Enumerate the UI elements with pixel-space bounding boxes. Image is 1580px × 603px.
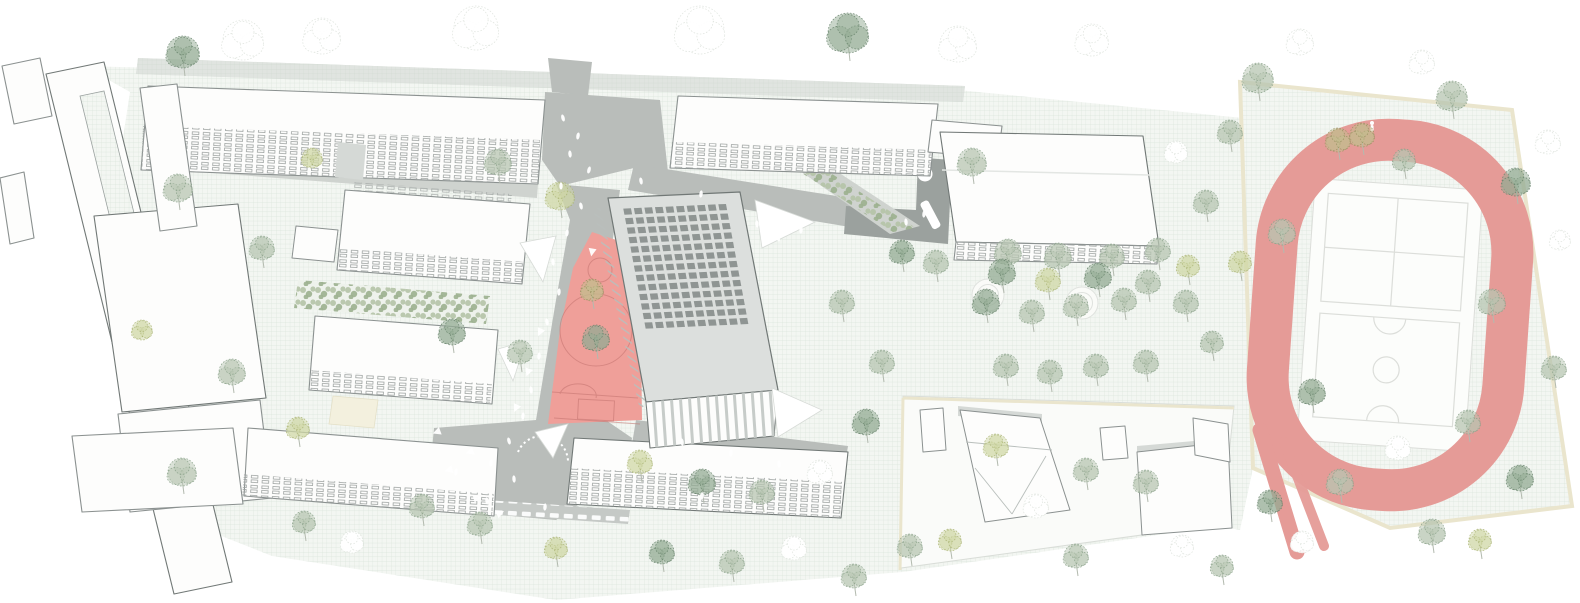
- roof-solar-panel: [637, 227, 646, 233]
- roof-solar-panel: [710, 271, 719, 277]
- tree: [939, 26, 977, 62]
- roof-solar-panel: [687, 205, 696, 211]
- tree: [1409, 50, 1434, 74]
- roof-solar-panel: [664, 254, 673, 260]
- roof-solar-panel: [667, 273, 676, 279]
- roof-solar-panel: [648, 284, 657, 290]
- roof-solar-panel: [667, 216, 676, 222]
- roof-solar-panel: [701, 224, 710, 230]
- roof-solar-panel: [731, 270, 740, 276]
- roof-solar-panel: [662, 245, 671, 251]
- roof-solar-panel: [637, 284, 646, 290]
- site-plan-drawing: [0, 0, 1580, 603]
- roof-solar-panel: [623, 208, 632, 214]
- roof-solar-panel: [729, 318, 738, 324]
- tree: [841, 564, 866, 596]
- roof-solar-panel: [660, 235, 669, 241]
- roof-solar-panel: [722, 280, 731, 286]
- roof-solar-panel: [697, 262, 706, 268]
- roof-solar-panel: [685, 311, 694, 317]
- roof-solar-panel: [703, 291, 712, 297]
- roof-solar-panel: [699, 272, 708, 278]
- roof-solar-panel: [690, 282, 699, 288]
- campus-masterplan-figure: [0, 0, 1580, 603]
- house-small-2: [1100, 426, 1128, 460]
- roof-solar-panel: [734, 289, 743, 295]
- roof-solar-panel: [674, 311, 683, 317]
- tree: [131, 320, 152, 340]
- roof-solar-panel: [681, 234, 690, 240]
- tree: [1075, 24, 1109, 56]
- roof-solar-panel: [674, 254, 683, 260]
- roof-solar-panel: [650, 236, 659, 242]
- roof-solar-panel: [713, 233, 722, 239]
- roof-solar-panel: [651, 245, 660, 251]
- house-small-1: [920, 408, 946, 452]
- roof-solar-panel: [680, 282, 689, 288]
- track-infield: [1297, 178, 1483, 451]
- roof-solar-panel: [627, 227, 636, 233]
- roof-solar-panel: [655, 264, 664, 270]
- roof-solar-panel: [736, 299, 745, 305]
- tree: [222, 20, 264, 60]
- roof-solar-panel: [706, 252, 715, 258]
- block-a-stair-core: [335, 142, 366, 180]
- edge-block-nw-1: [2, 58, 52, 124]
- roof-solar-panel: [666, 321, 675, 327]
- roof-solar-panel: [676, 321, 685, 327]
- roof-solar-panel: [625, 218, 634, 224]
- roof-solar-panel: [629, 237, 638, 243]
- roof-solar-panel: [720, 271, 729, 277]
- roof-solar-panel: [683, 244, 692, 250]
- roof-solar-panel: [708, 319, 717, 325]
- tree: [1549, 230, 1570, 250]
- roof-solar-panel: [740, 318, 749, 324]
- roof-solar-panel: [703, 233, 712, 239]
- roof-solar-panel: [688, 272, 697, 278]
- roof-solar-panel: [655, 322, 664, 328]
- tree: [1468, 529, 1491, 559]
- roof-solar-panel: [708, 262, 717, 268]
- roof-solar-panel: [694, 301, 703, 307]
- roof-solar-panel: [688, 215, 697, 221]
- roof-solar-panel: [643, 255, 652, 261]
- roof-solar-panel: [701, 281, 710, 287]
- roof-solar-panel: [646, 274, 655, 280]
- tree: [1418, 519, 1445, 553]
- roof-solar-panel: [696, 310, 705, 316]
- roof-solar-panel: [725, 242, 734, 248]
- roof-solar-panel: [738, 308, 747, 314]
- edge-block-w-2: [0, 172, 34, 244]
- roof-solar-panel: [680, 225, 689, 231]
- tree: [303, 18, 341, 54]
- roof-solar-panel: [653, 255, 662, 261]
- roof-solar-panel: [713, 290, 722, 296]
- roof-solar-panel: [704, 300, 713, 306]
- roof-solar-panel: [662, 302, 671, 308]
- roof-solar-panel: [692, 291, 701, 297]
- roof-solar-panel: [660, 293, 669, 299]
- roof-solar-panel: [634, 208, 643, 214]
- tree: [674, 6, 724, 54]
- roof-solar-panel: [659, 283, 668, 289]
- house-east-wing: [1193, 418, 1230, 462]
- roof-solar-panel: [697, 205, 706, 211]
- roof-solar-panel: [659, 226, 668, 232]
- roof-solar-panel: [694, 243, 703, 249]
- roof-solar-panel: [657, 274, 666, 280]
- roof-solar-panel: [636, 217, 645, 223]
- tree: [1170, 535, 1193, 557]
- roof-solar-panel: [630, 246, 639, 252]
- tree: [1286, 29, 1313, 55]
- roof-solar-panel: [671, 292, 680, 298]
- roof-solar-panel: [673, 244, 682, 250]
- roof-solar-panel: [648, 226, 657, 232]
- roof-solar-panel: [646, 217, 655, 223]
- roof-solar-panel: [711, 223, 720, 229]
- roof-solar-panel: [652, 303, 661, 309]
- plaza-north-link: [548, 58, 592, 96]
- roof-solar-panel: [718, 204, 727, 210]
- roof-solar-panel: [639, 294, 648, 300]
- roof-solar-panel: [664, 312, 673, 318]
- roof-solar-panel: [641, 246, 650, 252]
- roof-solar-panel: [727, 309, 736, 315]
- tree: [827, 13, 869, 61]
- roof-solar-panel: [636, 275, 645, 281]
- tree: [1290, 531, 1313, 553]
- roof-solar-panel: [704, 243, 713, 249]
- roof-solar-panel: [644, 207, 653, 213]
- roof-solar-panel: [708, 204, 717, 210]
- roof-solar-panel: [725, 299, 734, 305]
- tree: [1535, 130, 1560, 154]
- sand-court: [329, 396, 378, 428]
- tree: [452, 6, 498, 50]
- roof-solar-panel: [717, 252, 726, 258]
- roof-solar-panel: [657, 216, 666, 222]
- roof-solar-panel: [673, 302, 682, 308]
- roof-solar-panel: [720, 213, 729, 219]
- person-figure: [559, 182, 562, 189]
- roof-solar-panel: [685, 253, 694, 259]
- roof-solar-panel: [681, 292, 690, 298]
- roof-solar-panel: [695, 253, 704, 259]
- roof-solar-panel: [678, 215, 687, 221]
- roof-solar-panel: [729, 261, 738, 267]
- roof-solar-panel: [644, 265, 653, 271]
- roof-solar-panel: [632, 256, 641, 262]
- roof-solar-panel: [715, 300, 724, 306]
- roof-solar-panel: [687, 320, 696, 326]
- roof-solar-panel: [687, 263, 696, 269]
- roof-solar-panel: [676, 206, 685, 212]
- roof-solar-panel: [697, 320, 706, 326]
- roof-solar-panel: [711, 281, 720, 287]
- roof-solar-panel: [692, 234, 701, 240]
- roof-solar-panel: [678, 273, 687, 279]
- roof-solar-panel: [634, 265, 643, 271]
- roof-solar-panel: [653, 312, 662, 318]
- tree: [301, 148, 322, 168]
- roof-solar-panel: [641, 303, 650, 309]
- roof-solar-panel: [643, 313, 652, 319]
- roof-solar-panel: [669, 225, 678, 231]
- roof-solar-panel: [718, 261, 727, 267]
- roof-solar-panel: [666, 264, 675, 270]
- classroom-block-c: [307, 316, 498, 404]
- roof-solar-panel: [676, 263, 685, 269]
- block-b-annex: [292, 226, 338, 262]
- tree: [1257, 490, 1282, 522]
- roof-solar-panel: [650, 293, 659, 299]
- roof-solar-panel: [715, 242, 724, 248]
- roof-solar-panel: [724, 290, 733, 296]
- tree: [1210, 555, 1233, 585]
- roof-solar-panel: [718, 319, 727, 325]
- roof-solar-panel: [732, 280, 741, 286]
- roof-solar-panel: [710, 214, 719, 220]
- roof-solar-panel: [699, 214, 708, 220]
- roof-solar-panel: [655, 207, 664, 213]
- roof-solar-panel: [727, 251, 736, 257]
- southwest-block: [72, 428, 243, 512]
- roof-solar-panel: [722, 223, 731, 229]
- roof-solar-panel: [645, 322, 654, 328]
- roof-solar-panel: [706, 310, 715, 316]
- roof-solar-panel: [717, 309, 726, 315]
- tree: [1063, 544, 1088, 576]
- roof-solar-panel: [724, 232, 733, 238]
- roof-solar-panel: [666, 206, 675, 212]
- roof-solar-panel: [671, 235, 680, 241]
- roof-solar-panel: [669, 283, 678, 289]
- roof-solar-panel: [683, 301, 692, 307]
- roof-solar-panel: [639, 236, 648, 242]
- roof-solar-panel: [690, 224, 699, 230]
